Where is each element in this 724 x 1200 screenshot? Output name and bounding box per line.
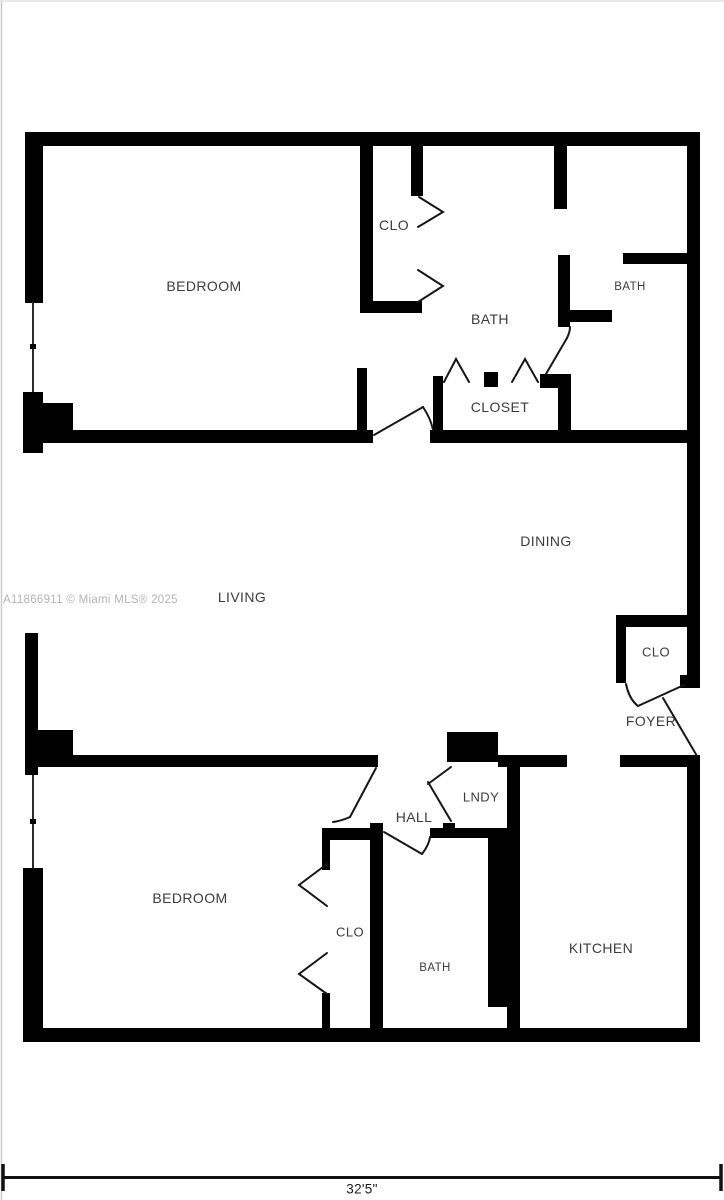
walls-upper bbox=[23, 132, 700, 1042]
door-swing-icon bbox=[638, 685, 684, 706]
wall-segment bbox=[616, 615, 626, 683]
wall-segment bbox=[38, 755, 378, 767]
room-label-bedroom-top: BEDROOM bbox=[166, 278, 241, 294]
wall-segment bbox=[23, 392, 43, 453]
window-mullion-icon bbox=[30, 819, 36, 824]
room-label-hall: HALL bbox=[396, 809, 433, 825]
wall-segment bbox=[43, 403, 73, 431]
room-label-dining: DINING bbox=[520, 533, 571, 549]
wall-segment bbox=[566, 310, 612, 322]
door-swing-arc-icon bbox=[423, 407, 433, 430]
wall-segment bbox=[25, 1028, 700, 1042]
floorplan-canvas: BEDROOM CLO BATH BATH CLOSET DINING LIVI… bbox=[0, 0, 724, 1200]
room-label-bath-bottom: BATH bbox=[419, 962, 450, 974]
walls-lower bbox=[23, 633, 700, 1042]
wall-segment bbox=[623, 253, 687, 264]
wall-segment bbox=[554, 146, 567, 209]
room-label-living: LIVING bbox=[218, 589, 266, 605]
door-swing-arc-icon bbox=[626, 684, 638, 706]
room-label-closet-hall: CLOSET bbox=[471, 399, 529, 415]
wall-segment bbox=[411, 140, 423, 196]
room-label-bath-main: BATH bbox=[471, 311, 509, 327]
wall-segment bbox=[616, 615, 688, 627]
wall-segment bbox=[687, 132, 700, 688]
wall-segment bbox=[507, 762, 520, 1028]
wall-segment bbox=[360, 301, 422, 313]
room-label-closet-foyer: CLO bbox=[642, 645, 670, 660]
room-label-closet-top: CLO bbox=[379, 217, 409, 233]
wall-segment bbox=[443, 823, 455, 838]
wall-segment bbox=[322, 993, 330, 1028]
wall-segment bbox=[447, 732, 498, 762]
room-label-laundry: LNDY bbox=[463, 790, 499, 805]
wall-segment bbox=[620, 755, 700, 767]
bifold-door-icon bbox=[418, 197, 443, 227]
bifold-door-icon bbox=[512, 359, 538, 382]
wall-segment bbox=[498, 755, 567, 767]
door-swing-icon bbox=[350, 768, 376, 817]
door-swing-arc-icon bbox=[567, 327, 570, 338]
bifold-door-icon bbox=[299, 953, 327, 994]
room-label-closet-bottom: CLO bbox=[336, 925, 364, 940]
wall-segment bbox=[23, 868, 43, 1042]
door-swing-icon bbox=[428, 767, 451, 784]
wall-segment bbox=[370, 823, 383, 1028]
room-label-foyer: FOYER bbox=[626, 713, 676, 729]
mls-watermark: A11866911 © Miami MLS® 2025 bbox=[3, 594, 178, 606]
wall-segment bbox=[360, 140, 373, 313]
door-swing-arc-icon bbox=[333, 817, 350, 822]
wall-segment bbox=[25, 430, 373, 443]
room-label-bath-ensuite: BATH bbox=[614, 281, 645, 293]
window-mullion-icon bbox=[30, 344, 36, 349]
room-label-bedroom-bottom: BEDROOM bbox=[152, 890, 227, 906]
bifold-door-icon bbox=[418, 270, 443, 302]
bifold-door-icon bbox=[299, 864, 327, 906]
wall-segment bbox=[687, 757, 700, 1042]
wall-segment bbox=[430, 430, 700, 443]
wall-segment bbox=[25, 132, 43, 303]
room-label-kitchen: KITCHEN bbox=[569, 940, 633, 956]
door-swing-icon bbox=[374, 407, 423, 435]
wall-segment bbox=[322, 828, 370, 840]
wall-segment bbox=[484, 372, 498, 387]
dimension-width-label: 32'5" bbox=[346, 1182, 377, 1197]
door-swing-arc-icon bbox=[422, 837, 430, 854]
bifold-door-icon bbox=[444, 359, 469, 382]
door-swing-icon bbox=[384, 832, 422, 854]
door-swing-icon bbox=[546, 338, 567, 374]
wall-segment bbox=[357, 368, 367, 431]
wall-segment bbox=[433, 376, 443, 431]
wall-segment bbox=[558, 374, 571, 431]
